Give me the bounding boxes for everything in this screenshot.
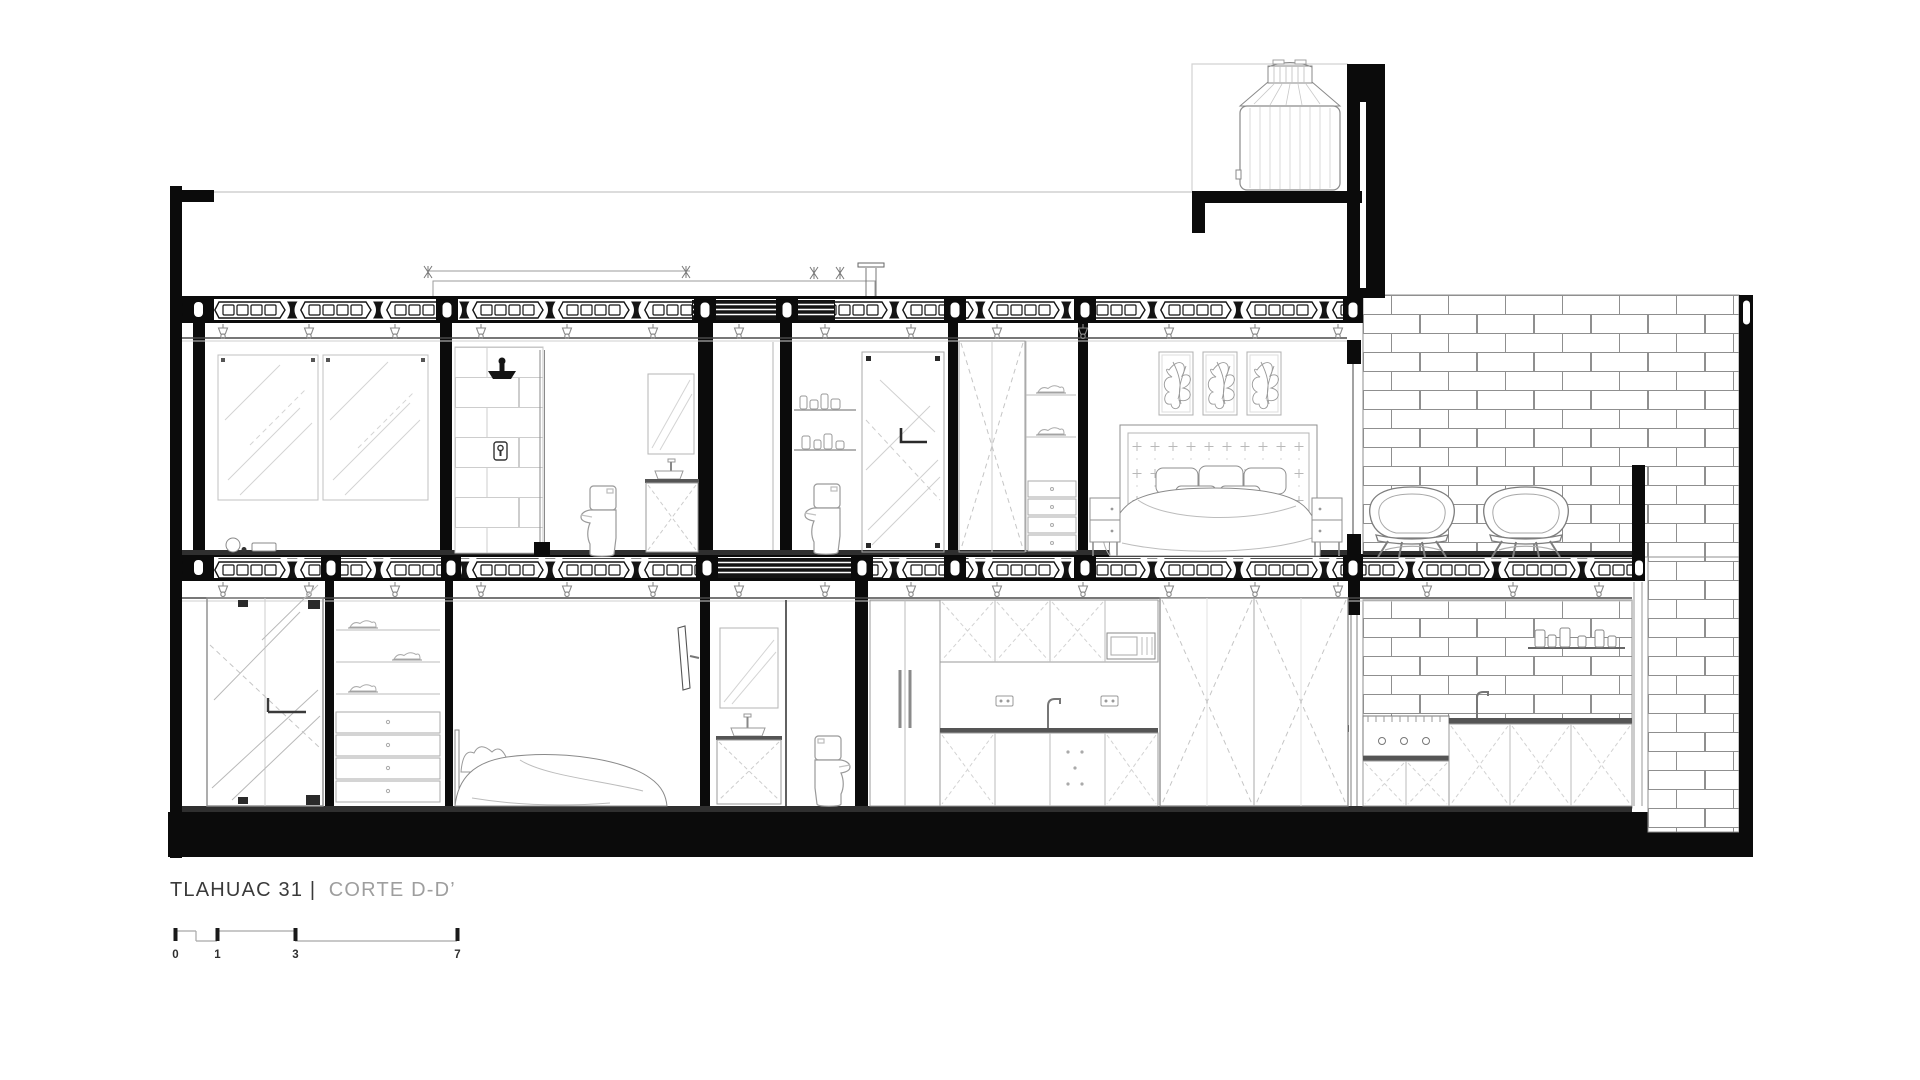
scale-tick: [216, 928, 220, 941]
sliding-panel-doors: [1160, 598, 1348, 806]
left-parapet-cap: [170, 190, 214, 202]
ground-slab: [168, 812, 1753, 857]
roof-slab: [170, 296, 1363, 323]
scale-tick: [174, 928, 178, 941]
scale-label-7: 7: [454, 949, 460, 961]
project-name: TLAHUAC 31 |: [170, 879, 316, 901]
title-block: TLAHUAC 31 | CORTE D-D’: [170, 879, 456, 901]
architectural-section-sheet: TLAHUAC 31 | CORTE D-D’ 0 1 3 7: [0, 0, 1920, 1080]
countertop: [940, 728, 1158, 733]
shower: [455, 347, 550, 555]
outdoor-countertop: [1449, 718, 1632, 724]
shower-valve-icon: [494, 442, 507, 460]
scale-tick: [294, 928, 298, 941]
mid-floor-slab: [170, 554, 1645, 581]
scale-label-3: 3: [292, 949, 298, 961]
scale-tick: [456, 928, 460, 941]
microwave: [1107, 633, 1155, 659]
right-exterior-wall: [1739, 295, 1753, 853]
section-drawing: TLAHUAC 31 | CORTE D-D’ 0 1 3 7: [0, 0, 1920, 1080]
scale-label-1: 1: [214, 949, 221, 961]
grill: [1363, 716, 1449, 806]
scale-label-0: 0: [172, 949, 178, 961]
left-exterior-wall: [170, 186, 182, 858]
section-label: CORTE D-D’: [329, 879, 456, 901]
drawing-title: TLAHUAC 31 | CORTE D-D’: [170, 879, 456, 901]
